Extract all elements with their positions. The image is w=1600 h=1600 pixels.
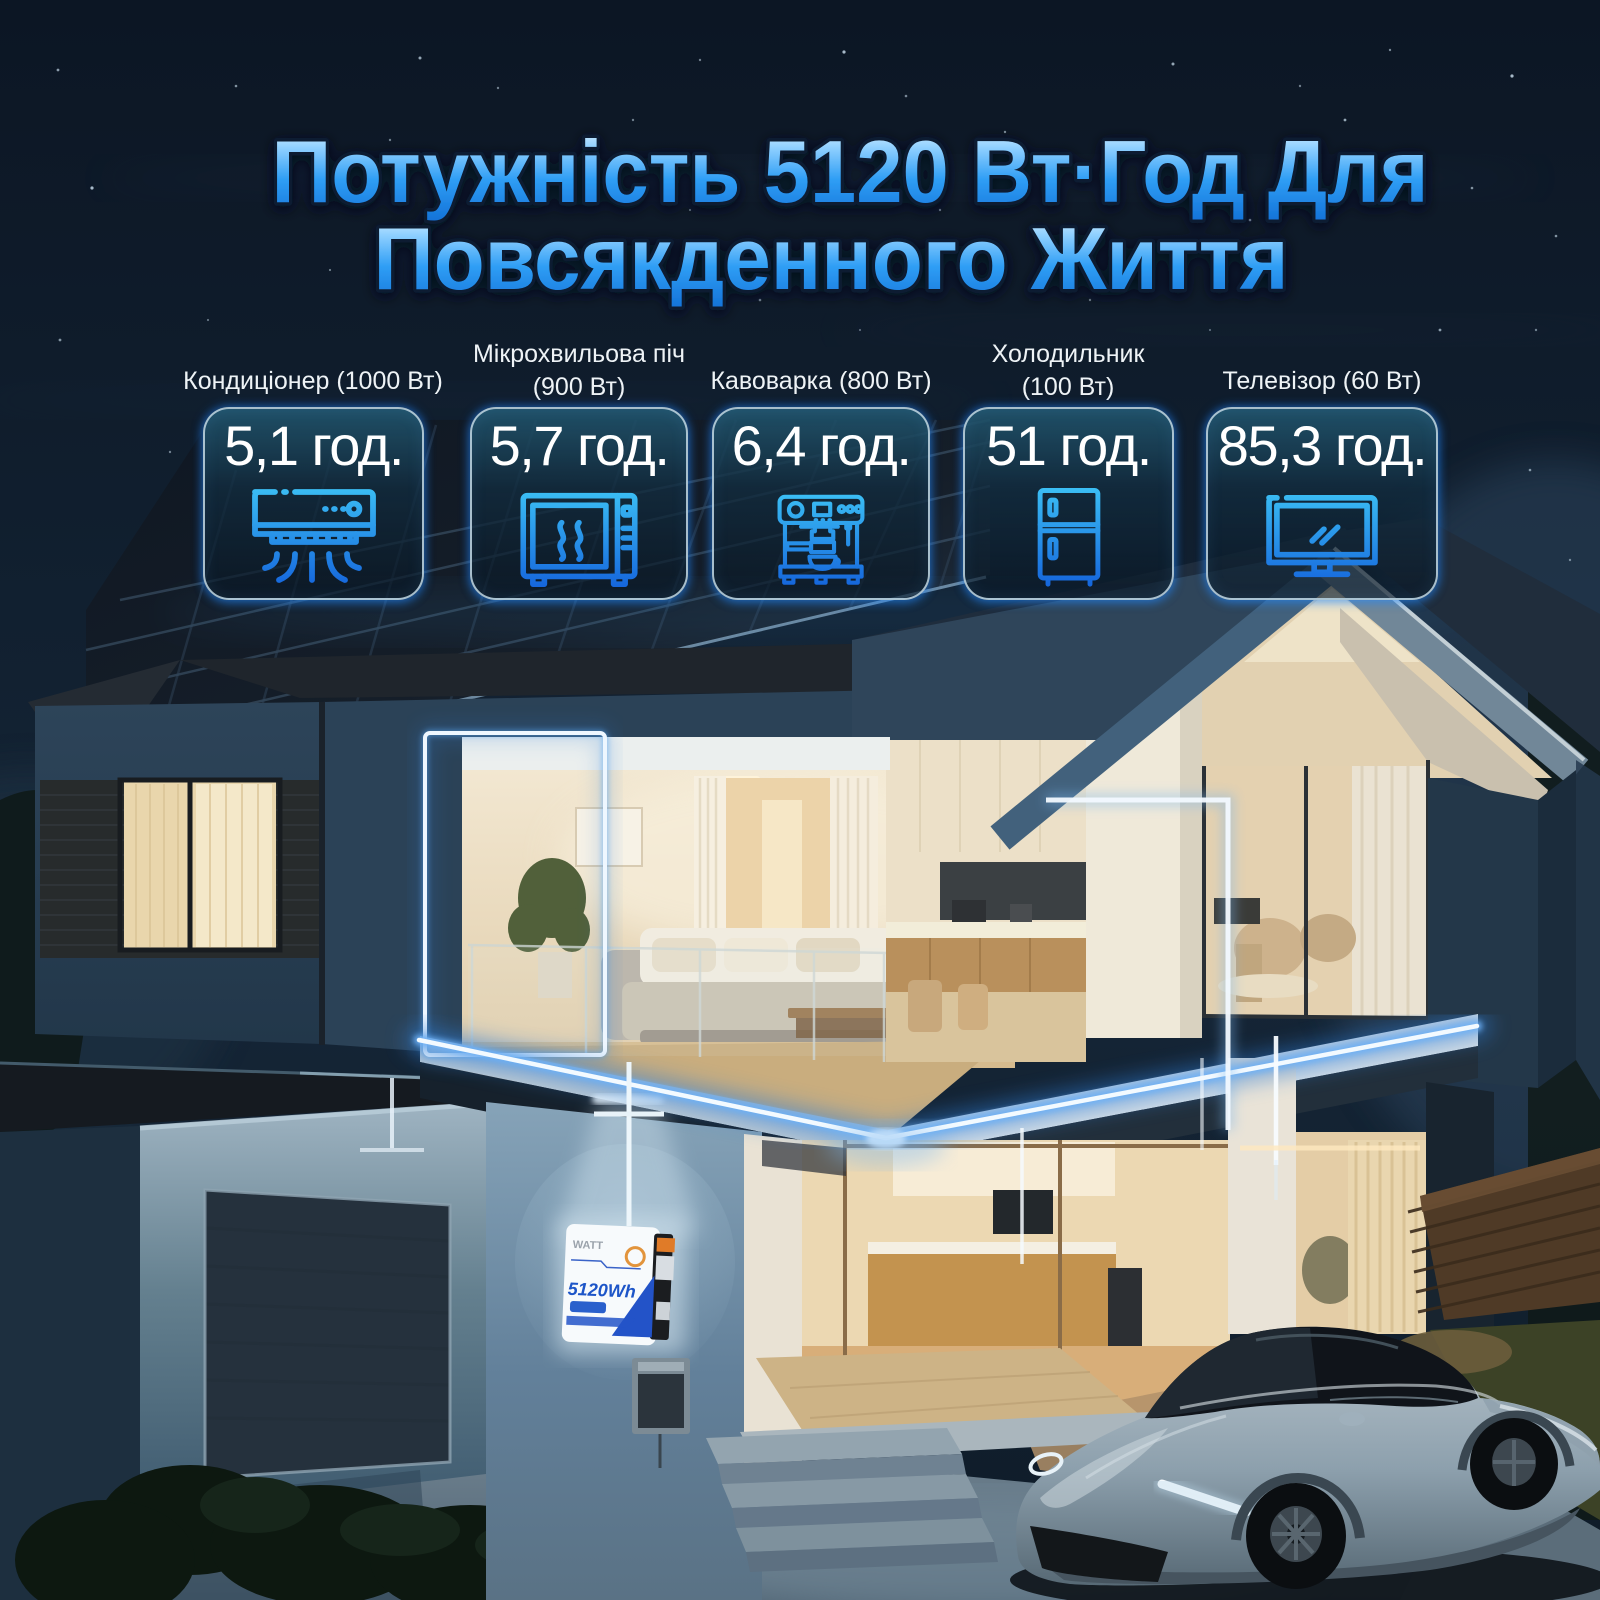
- svg-text:Повсякденного Життя: Повсякденного Життя: [374, 209, 1289, 308]
- svg-text:5120Wh: 5120Wh: [567, 1279, 636, 1302]
- svg-text:WATT: WATT: [572, 1239, 603, 1252]
- svg-text:Потужність 5120 Вт·Год Для: Потужність 5120 Вт·Год Для: [272, 122, 1429, 221]
